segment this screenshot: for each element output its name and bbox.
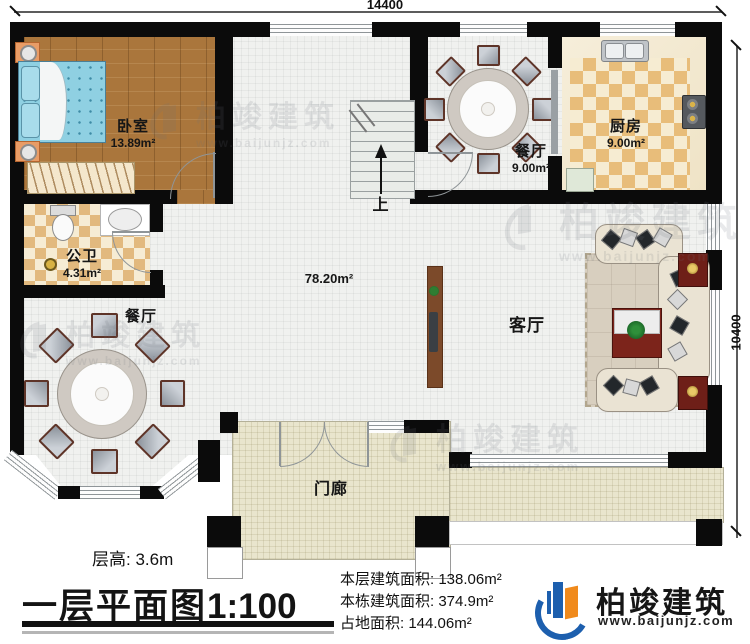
wall-bedroom-right <box>215 22 233 204</box>
nightstand-lamp-bottom <box>20 144 37 161</box>
wall-porch-left <box>220 412 238 433</box>
tv <box>429 312 438 352</box>
chair <box>91 313 118 338</box>
nightstand-lamp-top <box>20 45 37 62</box>
stair-up-arrow-line <box>380 156 382 194</box>
side-table-bottom-ornament <box>687 386 698 397</box>
wall-bath-right-1 <box>150 204 163 232</box>
stat-floor-area-value: 138.06m² <box>438 571 501 588</box>
bay-window-bottom <box>80 486 142 499</box>
bay-wall-cap-1 <box>58 486 82 499</box>
porch-column-right <box>415 516 449 547</box>
window-top-2 <box>460 24 527 36</box>
bathroom-door-leaf <box>112 231 150 233</box>
entry-door-leaf-left <box>279 422 281 466</box>
wall-living-bottom-2 <box>668 452 722 468</box>
stair-up-arrow-head <box>375 144 387 158</box>
dining-top-name: 餐厅 <box>512 143 550 161</box>
title-underline-thick <box>22 621 334 627</box>
floor-drain <box>44 258 57 271</box>
kitchen-name: 厨房 <box>607 118 645 136</box>
side-table-top-ornament <box>687 263 698 274</box>
bed-pillow-2 <box>21 103 40 138</box>
wall-kitchen-left-1 <box>548 22 562 68</box>
stairs-up-label: 上 <box>372 197 389 216</box>
kitchen-slider-door <box>551 70 558 154</box>
dining-top-area: 9.00m² <box>512 161 550 175</box>
entry-door-leaf-right <box>367 422 369 466</box>
dining-door-leaf <box>428 152 472 154</box>
living-label: 客厅 <box>509 316 545 336</box>
brand-logo-icon <box>538 578 590 634</box>
bedroom-label: 卧室 13.89m² <box>111 118 156 150</box>
stat-floor-area: 本层建筑面积: 138.06m² <box>340 568 502 590</box>
dimension-line-right <box>736 46 738 538</box>
kitchen-cabinet <box>566 168 594 192</box>
chair <box>532 98 553 121</box>
wall-porch-right <box>404 420 449 433</box>
bath-sink-basin <box>108 208 142 231</box>
stat-floor-area-label: 本层建筑面积: <box>340 571 434 588</box>
kitchen-area: 9.00m² <box>607 136 645 150</box>
kitchen-sink-basin-1 <box>605 43 624 59</box>
bathroom-label: 公卫 4.31m² <box>63 248 101 280</box>
kitchen-label: 厨房 9.00m² <box>607 118 645 150</box>
stat-building-area-value: 374.9m² <box>438 593 493 610</box>
terrace-floor <box>449 467 724 523</box>
bedroom-name: 卧室 <box>111 118 156 136</box>
brand-url: www.baijunjz.com <box>598 613 734 628</box>
stat-land-area: 占地面积: 144.06m² <box>340 612 502 634</box>
stat-building-area: 本栋建筑面积: 374.9m² <box>340 590 502 612</box>
stat-building-area-label: 本栋建筑面积: <box>340 593 434 610</box>
stove-burner-2 <box>687 113 698 124</box>
chair <box>24 380 49 407</box>
bathroom-name: 公卫 <box>63 248 101 266</box>
chair <box>160 380 185 407</box>
window-right-1 <box>707 197 720 250</box>
dining-table-bottom <box>57 349 147 439</box>
bed-pillow-1 <box>21 66 40 101</box>
bedroom-door-leaf <box>213 152 215 198</box>
area-stats: 本层建筑面积: 138.06m² 本栋建筑面积: 374.9m² 占地面积: 1… <box>340 568 502 634</box>
dining-table-top <box>447 68 529 150</box>
chair <box>477 153 500 174</box>
floor-plan-canvas: 卧室 13.89m² 公卫 4.31m² 餐厅 9.00m² 厨房 9.00m²… <box>0 0 750 644</box>
dimension-height-label: 10400 <box>729 303 744 363</box>
window-top-3 <box>600 24 675 36</box>
dining-bottom-name: 餐厅 <box>125 308 157 326</box>
wardrobe <box>27 162 135 194</box>
dining-top-label: 餐厅 9.00m² <box>512 143 550 175</box>
porch-column-left <box>207 516 241 547</box>
porch-name: 门廊 <box>314 481 348 500</box>
stat-land-area-label: 占地面积: <box>340 615 404 632</box>
title-underline-thin <box>22 631 334 634</box>
stat-land-area-value: 144.06m² <box>408 615 471 632</box>
terrace-column <box>696 519 722 546</box>
chair <box>91 449 118 474</box>
toilet-bowl <box>52 214 74 241</box>
bedroom-area: 13.89m² <box>111 136 156 150</box>
stove-burner-1 <box>687 99 698 110</box>
coffee-table-plant <box>627 321 645 339</box>
hall-area-value: 78.20m² <box>305 271 353 286</box>
bay-wall-corner <box>198 440 220 482</box>
window-porch <box>368 421 406 433</box>
wall-top-3 <box>527 22 600 37</box>
wall-living-bottom-1 <box>449 452 472 468</box>
living-name: 客厅 <box>509 316 545 336</box>
kitchen-sink-basin-2 <box>625 43 644 59</box>
wall-bath-bottom <box>10 285 165 298</box>
porch-label: 门廊 <box>314 481 348 500</box>
chair <box>477 45 500 66</box>
window-top-1 <box>270 24 372 36</box>
bathroom-area: 4.31m² <box>63 266 101 280</box>
window-living-bottom <box>470 454 670 467</box>
wall-right-1 <box>706 22 722 197</box>
chair <box>424 98 445 121</box>
stairs-up-text: 上 <box>372 197 389 216</box>
hall-area-label: 78.20m² <box>305 271 353 286</box>
dining-bottom-label: 餐厅 <box>125 308 157 326</box>
terrace-step <box>449 521 723 545</box>
wall-kitchen-bottom <box>548 190 722 204</box>
floor-height-label: 层高: 3.6m <box>92 545 173 570</box>
tv-plant <box>429 286 439 296</box>
dimension-width-label: 14400 <box>367 0 403 12</box>
porch-step-left <box>207 547 243 579</box>
